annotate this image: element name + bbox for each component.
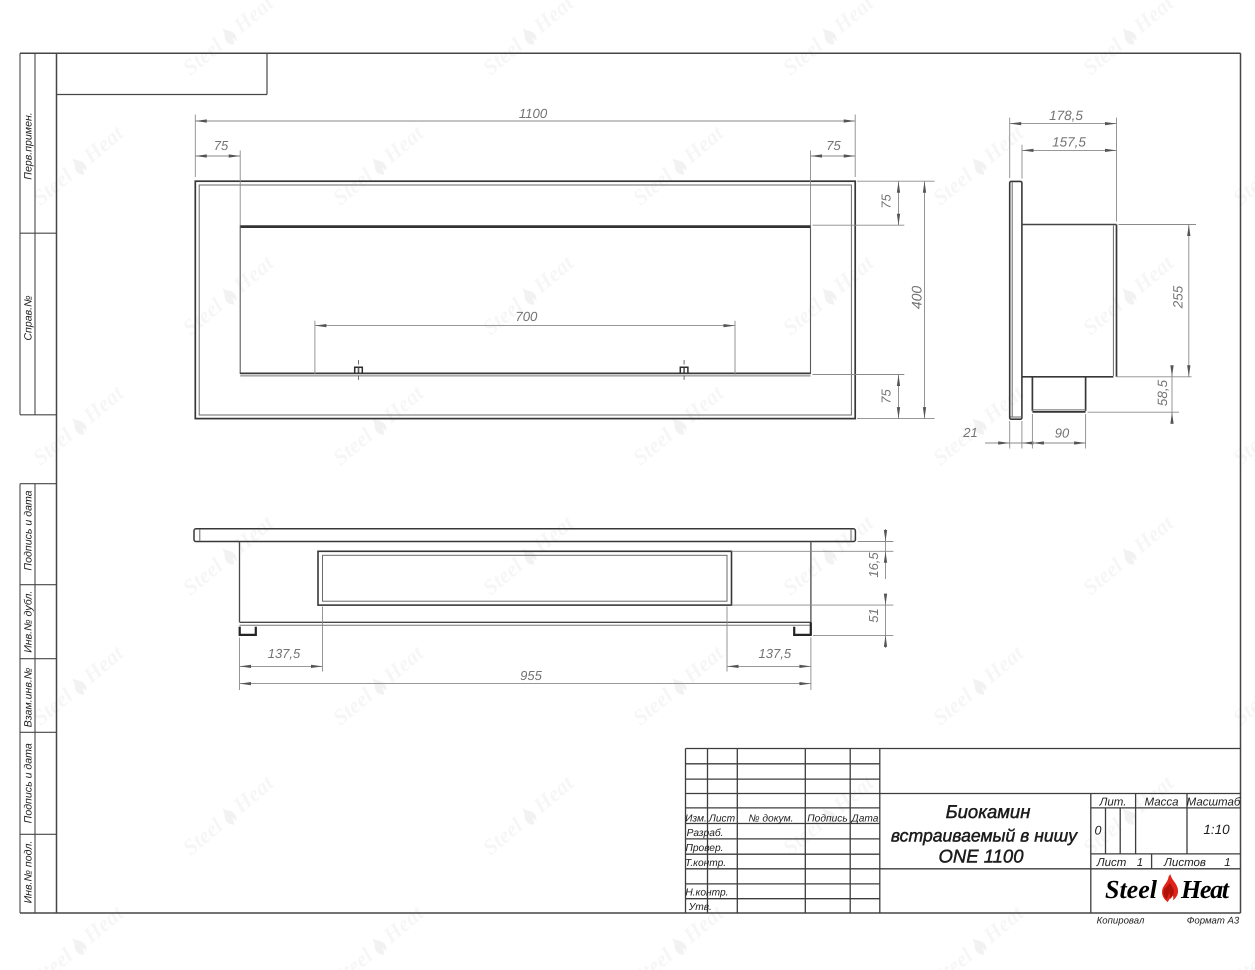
svg-text:ONE 1100: ONE 1100 [938, 846, 1024, 867]
svg-text:75: 75 [878, 194, 893, 209]
svg-text:178,5: 178,5 [1049, 108, 1083, 123]
svg-text:51: 51 [866, 608, 881, 622]
svg-text:21: 21 [962, 425, 977, 440]
svg-text:Провер.: Провер. [686, 843, 724, 854]
svg-text:1: 1 [1137, 857, 1143, 869]
svg-text:400: 400 [909, 286, 925, 310]
svg-text:Разраб.: Разраб. [687, 828, 724, 839]
svg-text:0: 0 [1095, 824, 1102, 838]
svg-text:Steel: Steel [1105, 875, 1158, 904]
svg-text:255: 255 [1171, 285, 1186, 309]
svg-text:Масштаб: Масштаб [1187, 797, 1241, 809]
svg-text:Масса: Масса [1144, 797, 1178, 809]
svg-text:Инв.№ подл.: Инв.№ подл. [23, 841, 35, 904]
svg-text:75: 75 [214, 138, 229, 153]
svg-text:Подпись: Подпись [807, 814, 847, 825]
svg-text:Перв.примен.: Перв.примен. [23, 112, 35, 179]
svg-text:Листов: Листов [1163, 857, 1206, 869]
svg-text:Т.контр.: Т.контр. [685, 858, 726, 869]
svg-text:16,5: 16,5 [866, 552, 881, 578]
svg-text:75: 75 [878, 389, 893, 404]
svg-text:137,5: 137,5 [759, 646, 792, 661]
svg-text:137,5: 137,5 [268, 646, 301, 661]
svg-text:1: 1 [1224, 857, 1230, 869]
svg-text:Подпись и дата: Подпись и дата [23, 490, 35, 570]
svg-text:Heat: Heat [1180, 875, 1230, 904]
svg-text:Н.контр.: Н.контр. [685, 888, 728, 899]
svg-text:1100: 1100 [519, 106, 548, 121]
svg-text:58,5: 58,5 [1155, 379, 1170, 406]
svg-text:Дата: Дата [851, 814, 879, 825]
svg-text:Копировал: Копировал [1097, 916, 1145, 927]
svg-text:Взам.инв.№: Взам.инв.№ [23, 667, 35, 727]
svg-text:90: 90 [1055, 426, 1070, 441]
svg-text:Формат А3: Формат А3 [1187, 916, 1240, 927]
svg-text:700: 700 [515, 309, 538, 324]
svg-text:Подпись и дата: Подпись и дата [23, 743, 35, 823]
svg-text:1:10: 1:10 [1203, 822, 1230, 837]
svg-text:Утв.: Утв. [688, 902, 712, 913]
svg-text:Лит.: Лит. [1099, 797, 1127, 809]
svg-text:№ докум.: № докум. [749, 814, 794, 825]
svg-text:Лист: Лист [708, 814, 736, 825]
svg-text:955: 955 [520, 668, 542, 683]
svg-text:157,5: 157,5 [1052, 135, 1086, 150]
svg-text:Инв.№ дубл.: Инв.№ дубл. [23, 591, 35, 653]
svg-text:Лист: Лист [1096, 857, 1127, 869]
svg-text:Справ.№: Справ.№ [23, 295, 35, 341]
svg-text:Изм.: Изм. [685, 814, 707, 825]
svg-text:75: 75 [826, 138, 841, 153]
svg-text:встраиваемый в нишу: встраиваемый в нишу [891, 826, 1078, 846]
svg-text:Биокамин: Биокамин [946, 801, 1031, 822]
